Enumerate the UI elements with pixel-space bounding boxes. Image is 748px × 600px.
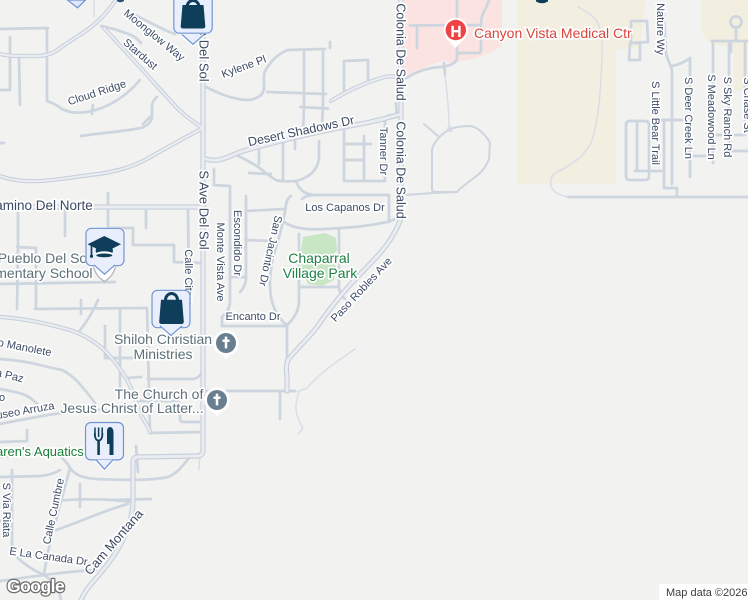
svg-text:Village Park: Village Park: [283, 265, 358, 281]
svg-text:Canyon Vista Medical Ctr: Canyon Vista Medical Ctr: [474, 25, 632, 41]
svg-text:Nature Wy: Nature Wy: [654, 3, 666, 55]
svg-text:Encanto Dr: Encanto Dr: [225, 311, 280, 323]
svg-text:S Little Bear Trail: S Little Bear Trail: [649, 81, 661, 165]
svg-text:Monte Vista Ave: Monte Vista Ave: [214, 222, 226, 301]
svg-text:Pueblo Del Sol: Pueblo Del Sol: [0, 250, 90, 266]
svg-text:S Sky Ranch Rd: S Sky Ranch Rd: [721, 77, 733, 158]
svg-text:S Ave Del Sol: S Ave Del Sol: [197, 170, 212, 249]
svg-text:Tanner Dr: Tanner Dr: [377, 127, 389, 176]
svg-text:aren's Aquatics: aren's Aquatics: [0, 444, 84, 459]
svg-text:Map data ©2026: Map data ©2026: [666, 587, 748, 599]
svg-text:Ministries: Ministries: [133, 346, 192, 362]
svg-text:Chaparral: Chaparral: [288, 250, 349, 266]
svg-text:ementary School: ementary School: [0, 265, 93, 281]
svg-text:S Meadowood Ln: S Meadowood Ln: [705, 74, 717, 160]
svg-text:S Via Riata: S Via Riata: [0, 483, 12, 539]
svg-text:Colonia De Salud: Colonia De Salud: [394, 121, 408, 218]
svg-text:Jesus Christ of Latter...: Jesus Christ of Latter...: [60, 400, 203, 416]
svg-text:Colonia De Salud: Colonia De Salud: [394, 3, 408, 100]
svg-text:amino Del Norte: amino Del Norte: [0, 198, 93, 213]
svg-text:Escondido Dr: Escondido Dr: [231, 210, 243, 276]
svg-text:Shiloh Christian: Shiloh Christian: [114, 331, 212, 347]
svg-text:o: o: [0, 392, 5, 404]
svg-text:Google: Google: [7, 576, 65, 596]
svg-text:S Deer Creek Ln: S Deer Creek Ln: [682, 77, 694, 159]
svg-text:S Chase St: S Chase St: [741, 77, 748, 133]
svg-text:Los Capanos Dr: Los Capanos Dr: [305, 202, 385, 214]
